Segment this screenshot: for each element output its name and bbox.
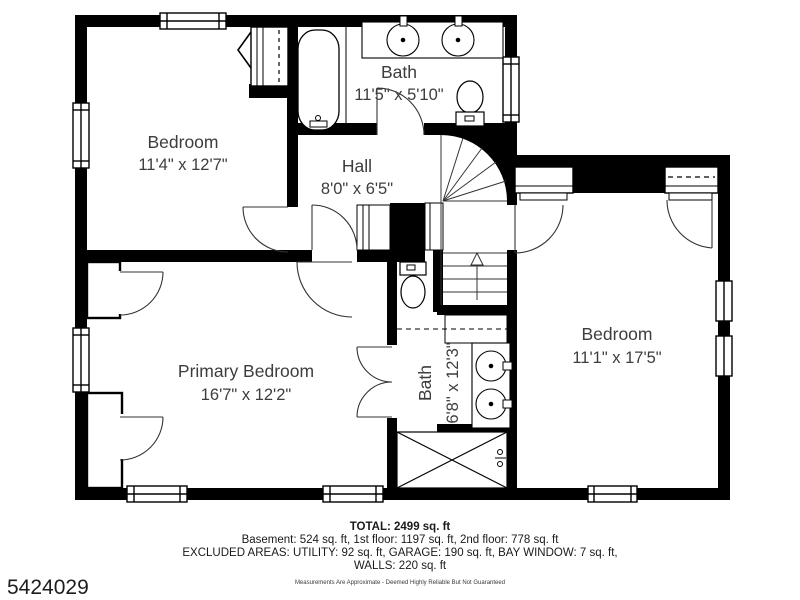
french-doors-primary-bath: [357, 347, 392, 417]
room-dims-bath-top: 11'5" x 5'10": [354, 86, 443, 104]
room-dims-bedroom-right: 11'1" x 17'5": [572, 349, 661, 367]
closet-primary-2: [87, 393, 125, 488]
area-summary: TOTAL: 2499 sq. ft Basement: 524 sq. ft,…: [0, 521, 800, 587]
listing-id: 5424029: [7, 576, 89, 600]
window-right-bedroom-2: [716, 336, 732, 376]
window-left-primary: [73, 328, 89, 392]
closet-angled-door: [238, 32, 251, 68]
window-bath-right: [503, 57, 519, 122]
stairs-up-arrow-icon: [471, 253, 483, 300]
bathtub-icon: [298, 30, 339, 130]
room-dims-hall: 8'0" x 6'5": [321, 180, 393, 198]
door-hall: [312, 205, 357, 250]
door-primary-closet-2: [120, 417, 163, 460]
room-label-bath-top: Bath: [381, 62, 417, 82]
toilet-icon: [400, 262, 426, 308]
window-right-bedroom-1: [716, 281, 732, 321]
room-dims-bath-lower: 6'8" x 12'3": [444, 342, 462, 423]
total-area-text: TOTAL: 2499 sq. ft: [0, 521, 800, 534]
floor-plan-svg: Bedroom 11'4" x 12'7" Bath 11'5" x 5'10"…: [0, 0, 800, 512]
window-top: [160, 13, 226, 29]
door-primary-bedroom: [297, 262, 352, 317]
disclaimer-text: Measurements Are Approximate - Deemed Hi…: [0, 579, 800, 587]
floor-areas-text: Basement: 524 sq. ft, 1st floor: 1197 sq…: [0, 534, 800, 547]
door-primary-closet-1: [120, 272, 163, 315]
stair-side-frame: [425, 203, 443, 250]
room-dims-bedroom-top-left: 11'4" x 12'7": [138, 156, 227, 174]
stairwell-curved-wall: [441, 123, 517, 205]
room-dims-primary-bedroom: 16'7" x 12'2": [201, 386, 292, 404]
closet-primary-1: [87, 262, 123, 318]
crossed-tub-icon: [397, 432, 507, 488]
hall-closet-door-frame: [357, 205, 390, 250]
door-right-bedroom-closet: [667, 200, 712, 248]
window-bottom-right-bedroom: [588, 486, 637, 502]
double-sink-vanity-icon: [472, 343, 512, 428]
double-vanity-icon: [362, 16, 503, 58]
toilet-icon: [456, 81, 484, 126]
door-right-bedroom-entry: [515, 205, 563, 253]
excluded-areas-text: EXCLUDED AREAS: UTILITY: 92 sq. ft, GARA…: [0, 547, 800, 560]
shower-icon: [397, 315, 507, 343]
room-label-bath-lower: Bath: [415, 365, 435, 401]
room-label-bedroom-right: Bedroom: [581, 324, 652, 344]
window-bottom-primary-1: [127, 486, 187, 502]
window-left-bedroom: [73, 103, 89, 168]
room-label-hall: Hall: [342, 156, 372, 176]
room-label-bedroom-top-left: Bedroom: [147, 132, 218, 152]
floor-plan-page: Bedroom 11'4" x 12'7" Bath 11'5" x 5'10"…: [0, 0, 800, 600]
closet-right-bedroom-2: [665, 167, 718, 200]
door-bedroom-top-left: [243, 207, 288, 252]
closet-top-left-bedroom: [238, 27, 288, 86]
closet-right-bedroom-1: [515, 167, 573, 200]
walls-area-text: WALLS: 220 sq. ft: [0, 560, 800, 573]
window-bottom-primary-2: [323, 486, 383, 502]
room-label-primary-bedroom: Primary Bedroom: [178, 361, 314, 381]
